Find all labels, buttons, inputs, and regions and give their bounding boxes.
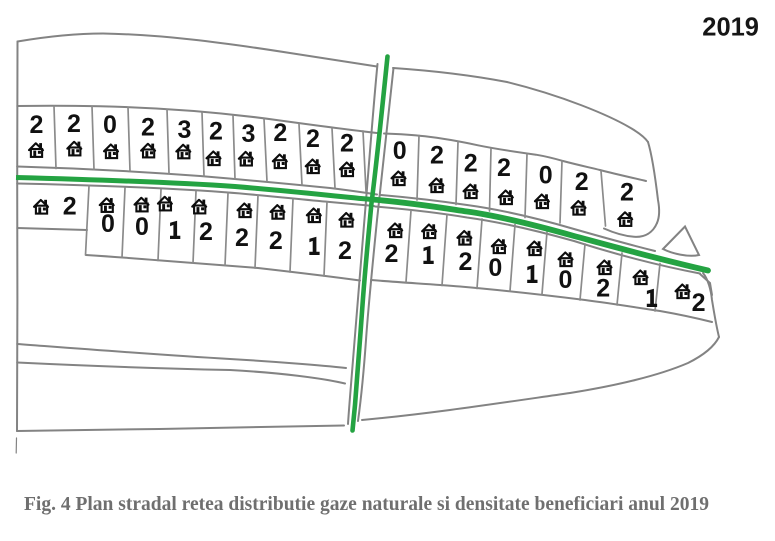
svg-text:2: 2 xyxy=(63,193,77,221)
svg-text:2: 2 xyxy=(458,248,472,276)
svg-text:2: 2 xyxy=(497,154,511,182)
svg-text:2019: 2019 xyxy=(702,14,759,42)
svg-text:2: 2 xyxy=(235,224,249,252)
svg-text:2: 2 xyxy=(141,114,155,142)
svg-text:2: 2 xyxy=(338,237,352,265)
svg-text:0: 0 xyxy=(103,111,117,139)
svg-text:2: 2 xyxy=(306,125,320,153)
svg-text:0: 0 xyxy=(393,137,407,165)
svg-text:2: 2 xyxy=(199,218,213,246)
svg-text:2: 2 xyxy=(340,130,354,158)
svg-text:0: 0 xyxy=(488,254,502,282)
svg-text:2: 2 xyxy=(464,149,478,177)
svg-text:2: 2 xyxy=(269,227,283,255)
svg-text:3: 3 xyxy=(242,120,256,148)
svg-text:2: 2 xyxy=(620,179,634,207)
svg-text:2: 2 xyxy=(575,168,589,196)
svg-text:2: 2 xyxy=(384,240,398,268)
svg-text:2: 2 xyxy=(430,142,444,170)
svg-text:Fig. 4 Plan stradal retea dist: Fig. 4 Plan stradal retea distributie ga… xyxy=(24,493,709,515)
svg-text:2: 2 xyxy=(692,289,706,317)
svg-text:0: 0 xyxy=(539,162,553,190)
svg-text:0: 0 xyxy=(101,210,115,238)
svg-text:3: 3 xyxy=(178,116,192,144)
svg-text:2: 2 xyxy=(273,119,287,147)
svg-text:2: 2 xyxy=(67,110,81,138)
svg-text:0: 0 xyxy=(559,266,573,294)
svg-text:2: 2 xyxy=(209,118,223,146)
svg-text:2: 2 xyxy=(596,275,610,303)
svg-text:0: 0 xyxy=(135,213,149,241)
svg-text:2: 2 xyxy=(30,111,44,139)
